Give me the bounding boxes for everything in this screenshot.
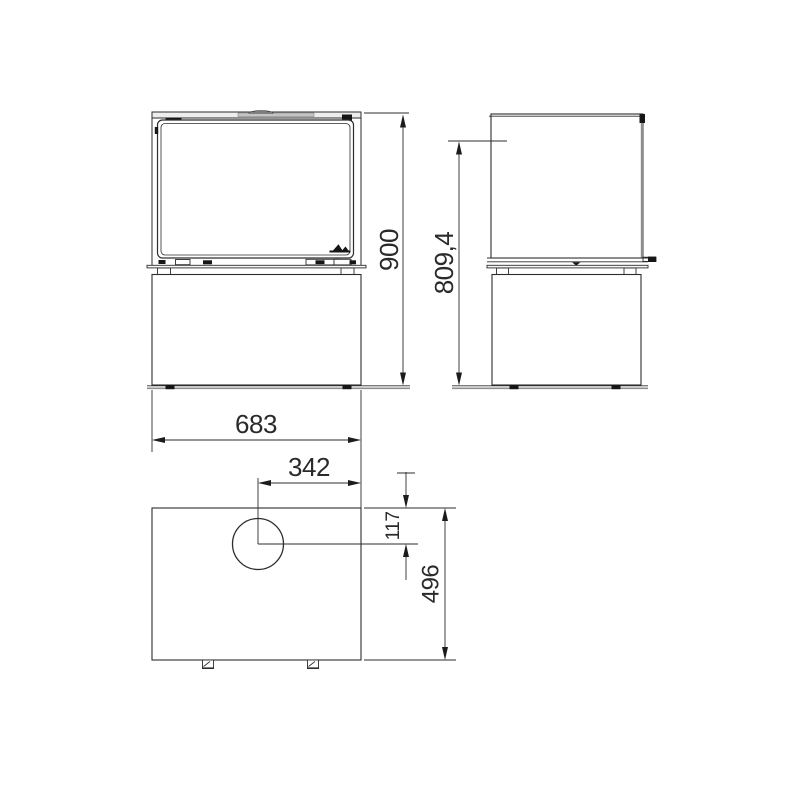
arrowhead-down (403, 495, 409, 508)
side-body-outline (491, 114, 643, 258)
arrowhead-up (403, 544, 409, 557)
arrowhead-up (442, 508, 448, 521)
side-foot-front (497, 268, 509, 275)
side-bottom-plate (487, 265, 648, 268)
front-bottom-plate (147, 265, 366, 268)
arrowhead-up (456, 142, 462, 155)
side-handle-tip (648, 257, 656, 262)
drawing-svg: 900 809,4 683 342 117 496 (0, 0, 800, 800)
top-view (152, 478, 418, 668)
side-base-foot-mark-2 (612, 385, 621, 389)
arrowhead-down (442, 647, 448, 660)
front-door-frame (158, 120, 354, 258)
base-foot-mark-right (343, 385, 352, 389)
dimension-depth: 496 (417, 508, 448, 660)
side-base-foot-mark-1 (510, 385, 519, 389)
front-foot-right (341, 268, 354, 275)
dimension-width: 683 (152, 409, 361, 443)
dimension-flue-height-value: 809,4 (429, 232, 459, 295)
arrowhead-up (400, 115, 406, 128)
arrowhead-down (400, 373, 406, 386)
dimension-height-value: 900 (374, 229, 404, 271)
side-view (452, 114, 656, 389)
dimension-depth-value: 496 (417, 565, 444, 604)
front-control-band (159, 259, 357, 265)
technical-drawing-canvas: 900 809,4 683 342 117 496 (0, 0, 800, 800)
arrowhead-down (456, 373, 462, 386)
dimension-flue-offset-side: 342 (258, 452, 361, 486)
dimension-width-value: 683 (235, 409, 277, 439)
front-foot-left (158, 268, 171, 275)
dimension-flue-offset-side-value: 342 (288, 452, 330, 482)
front-pedestal-base (152, 275, 361, 386)
dimension-flue-offset-rear: 117 (383, 472, 415, 580)
dimension-flue-offset-rear-value: 117 (383, 512, 404, 541)
arrowhead-right (348, 437, 361, 443)
side-corner-mark (640, 114, 646, 123)
top-foot-clip-left (202, 660, 214, 668)
arrowhead-right (348, 480, 361, 486)
dimension-flue-height: 809,4 (429, 142, 462, 386)
top-body-outline (152, 508, 361, 660)
arrowhead-left (258, 480, 271, 486)
front-door-hinge-icon (155, 127, 158, 134)
arrowhead-left (152, 437, 165, 443)
dimension-height: 900 (374, 115, 406, 386)
side-foot-rear (624, 268, 636, 275)
side-pedestal-base (492, 275, 641, 386)
front-view (147, 110, 410, 389)
base-foot-mark-left (166, 385, 175, 389)
top-foot-clip-right (307, 660, 319, 668)
